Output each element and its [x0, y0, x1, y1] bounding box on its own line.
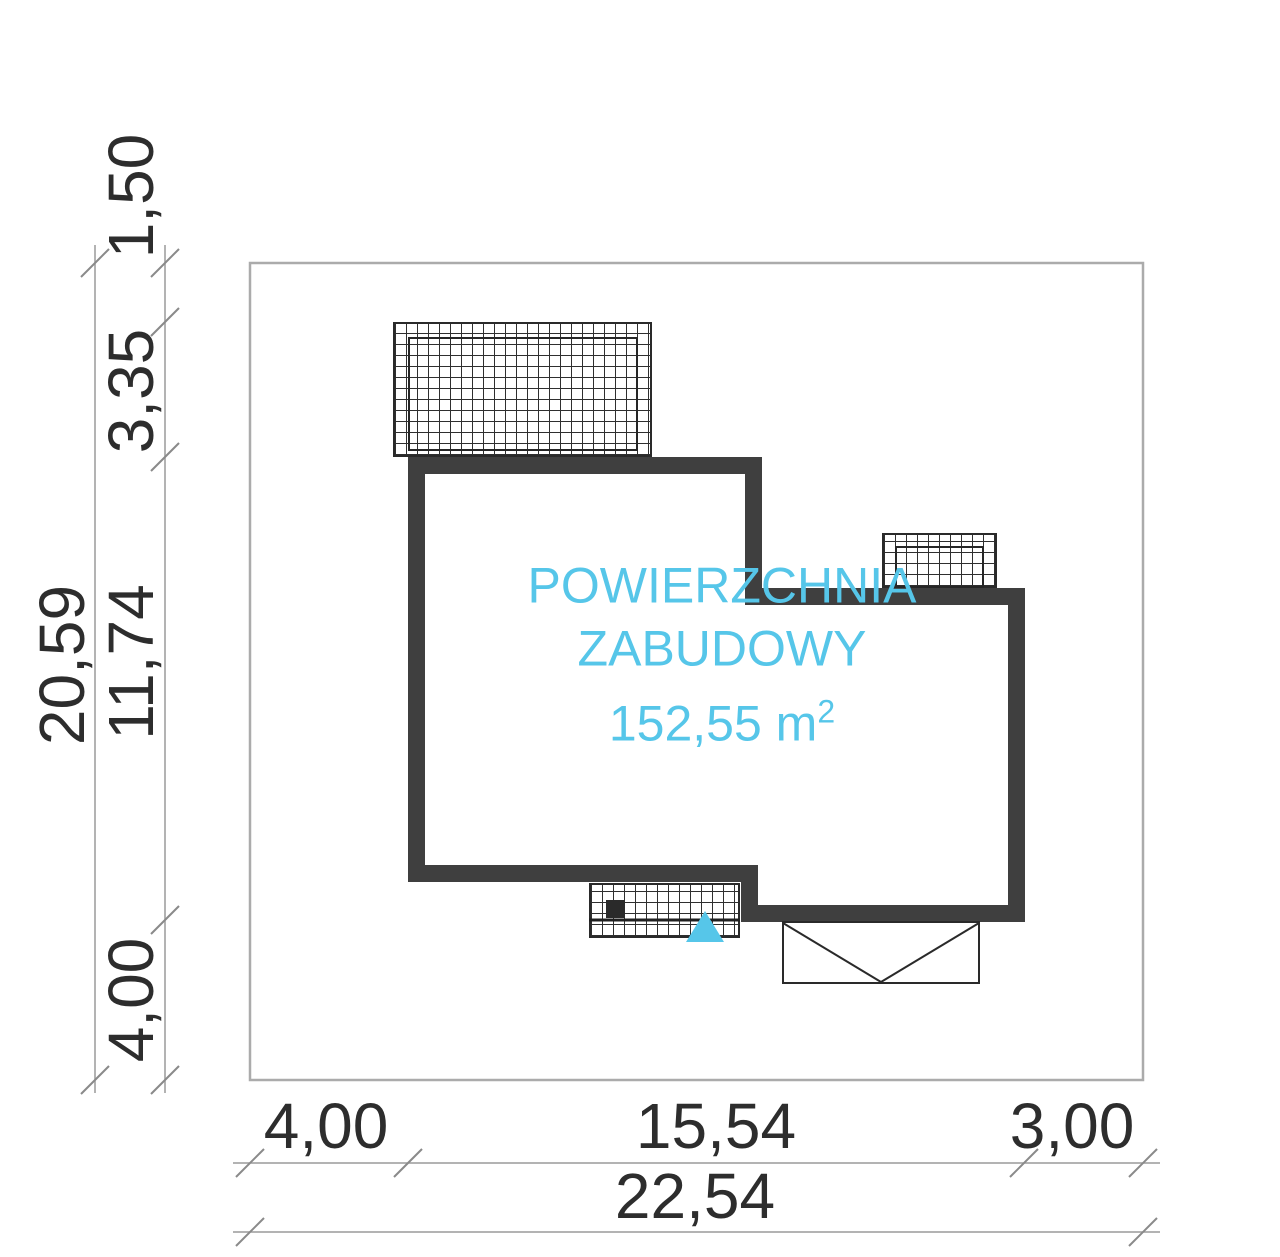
area-label-sup: 2 [817, 694, 835, 730]
dim-label-bottom-seg-2: 15,54 [636, 1094, 796, 1158]
dim-label-bottom-seg-3: 3,00 [1010, 1094, 1135, 1158]
building-area-label: POWIERZCHNIA ZABUDOWY 152,55 m2 [528, 555, 917, 756]
area-label-line1: POWIERZCHNIA [528, 555, 917, 618]
area-label-line2: ZABUDOWY [528, 618, 917, 681]
area-label-value: 152,55 m2 [528, 681, 917, 756]
dim-label-left-seg-4: 4,00 [99, 938, 163, 1063]
entrance-arrow-icon [686, 911, 724, 942]
terrace-steps-outline [783, 922, 979, 983]
entrance-pillar [606, 900, 625, 918]
dim-label-bottom-overall: 22,54 [615, 1164, 775, 1228]
dim-label-bottom-seg-1: 4,00 [264, 1094, 389, 1158]
dim-label-left-seg-2: 3,35 [99, 329, 163, 454]
dim-label-left-seg-1: 1,50 [99, 134, 163, 259]
dim-label-left-seg-3: 11,74 [99, 584, 163, 739]
dim-label-left-overall: 20,59 [30, 585, 94, 745]
site-plan-canvas: POWIERZCHNIA ZABUDOWY 152,55 m2 20,59 1,… [0, 0, 1280, 1257]
